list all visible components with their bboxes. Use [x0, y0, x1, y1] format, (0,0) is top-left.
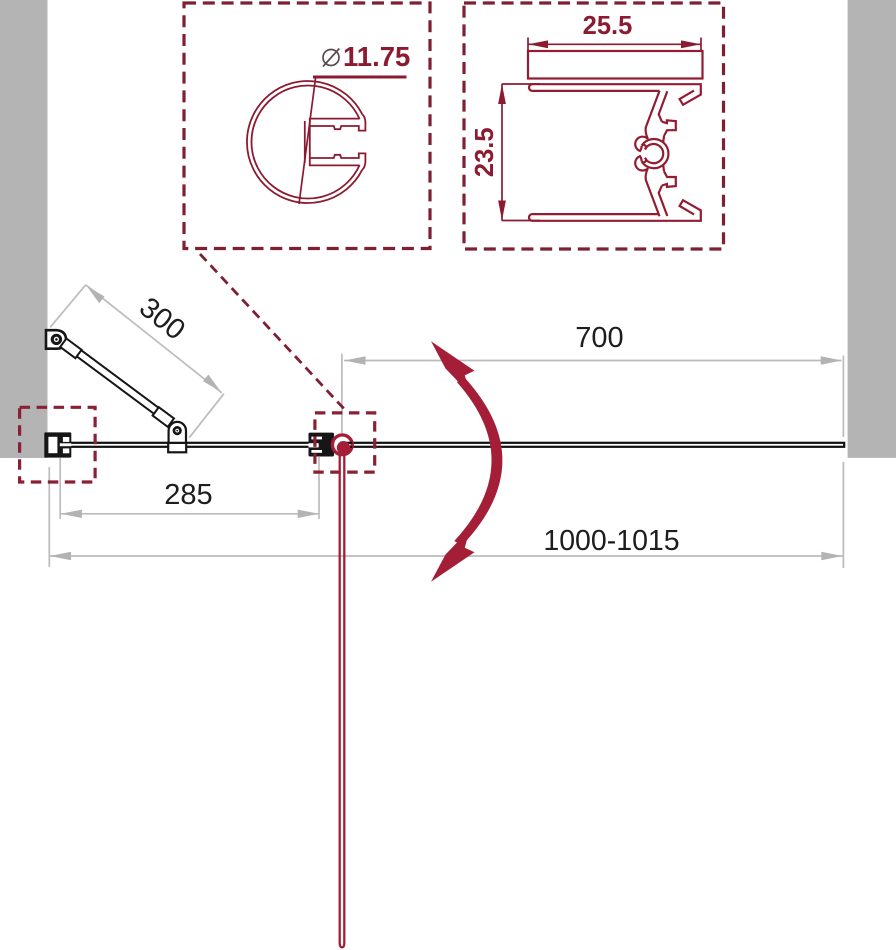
svg-text:25.5: 25.5	[583, 12, 633, 40]
svg-text:1000-1015: 1000-1015	[543, 525, 679, 557]
svg-text:23.5: 23.5	[471, 127, 499, 177]
svg-text:11.75: 11.75	[343, 41, 410, 72]
svg-text:700: 700	[575, 322, 623, 354]
svg-text:285: 285	[164, 479, 212, 511]
